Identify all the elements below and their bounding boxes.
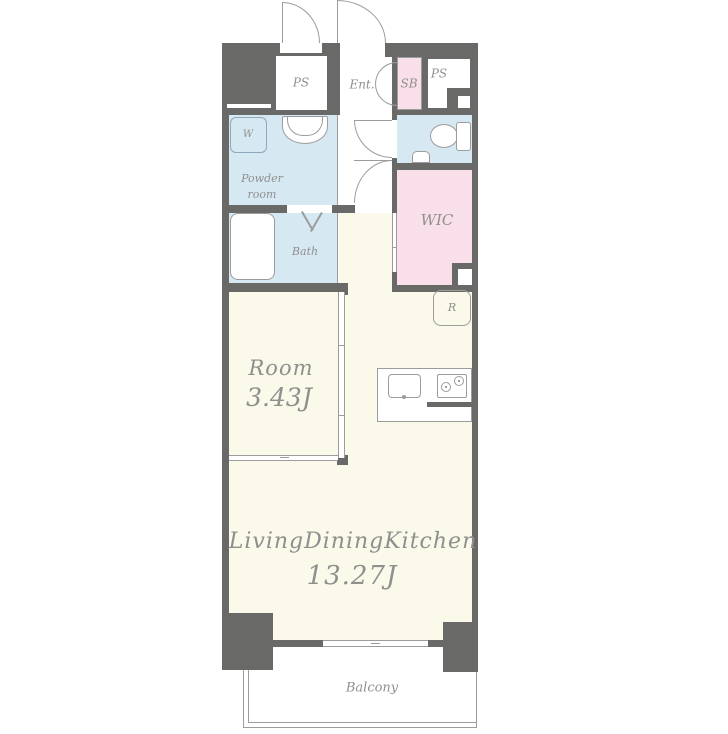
ps-left-label: PS [293,74,309,91]
wall-powder-bath-left [222,205,287,213]
sliding-door-bedroom-right [338,292,345,458]
ldk-name-label: LivingDiningKitchen [229,526,478,558]
wall-topleft-block [222,43,273,113]
toilet-paper-holder [412,151,430,163]
ps-right-label: PS [431,65,447,82]
corridor-floor [338,213,392,292]
toilet-bowl [430,124,458,148]
bedroom-name-label: Room [248,353,313,383]
ldk-area-label: 13.27J [307,558,398,596]
balcony-right-line [476,672,477,727]
refrigerator-label: R [448,300,456,316]
sliding-door-wic [392,213,397,272]
washer-label: W [243,128,253,143]
entrance-door-1-arc [282,2,320,43]
wall-powder-top [229,113,340,115]
balcony-bottom-line-inner [248,722,476,723]
shoe-box-door-lower-arc [375,84,397,106]
pillar-bottom-right [443,622,478,672]
kitchen-faucet-dot [402,395,406,399]
wall-bottom-left-segment [273,640,323,647]
wall-bath-bottom [222,283,348,292]
sliding-door-bedroom-right-tick2 [338,415,345,416]
counter-dark-bar [427,402,472,407]
pillar-bottom-left [222,613,273,670]
wall-entrance-left [330,43,340,115]
balcony-window-tick [371,643,380,644]
bath-label: Bath [292,244,318,260]
entrance-label: Ent. [349,76,374,93]
stove-burner-left-dot [445,386,447,388]
bedroom-area-label: 3.43J [246,380,312,416]
shoe-box-label: SB [400,75,417,92]
wic-corner-niche [458,269,472,285]
toilet-door-arc [354,120,392,158]
wic-label: WIC [421,210,454,232]
sliding-door-bedroom-bottom-tick [280,457,289,458]
floor-plan: PS Ent. SB PS W Powder room Bath WIC R R… [0,0,728,734]
sliding-door-bedroom-right-tick1 [338,345,345,346]
powder-room-label: Powder room [241,171,283,203]
bathtub [230,213,275,280]
ps-right-l-block-stem [447,88,458,110]
hall-door-arc [354,160,392,203]
balcony-bottom-line-outer [243,727,477,728]
wall-wic-left-upper [392,170,397,213]
toilet-tank [456,122,471,151]
wall-toilet-bottom [392,163,472,170]
wall-bottom-right-segment [428,640,443,647]
wall-top-right-segment [385,43,478,57]
sliding-door-wic-tick [392,247,397,248]
balcony-left-line-outer [243,670,244,728]
balcony-left-line-inner [248,670,249,723]
shoe-box-door-upper-arc [375,62,397,84]
wall-slit-window [227,104,271,108]
wall-under-sb-ps [397,110,478,115]
sliding-door-bedroom-bottom [229,455,338,461]
balcony-label: Balcony [346,680,398,699]
wall-hall-bottom-stub [332,205,355,213]
powder-room-label-line1: Powder [241,172,283,185]
entrance-door-2-arc [337,0,386,43]
powder-room-label-line2: room [248,188,277,201]
stove-burner-right-dot [458,380,460,382]
